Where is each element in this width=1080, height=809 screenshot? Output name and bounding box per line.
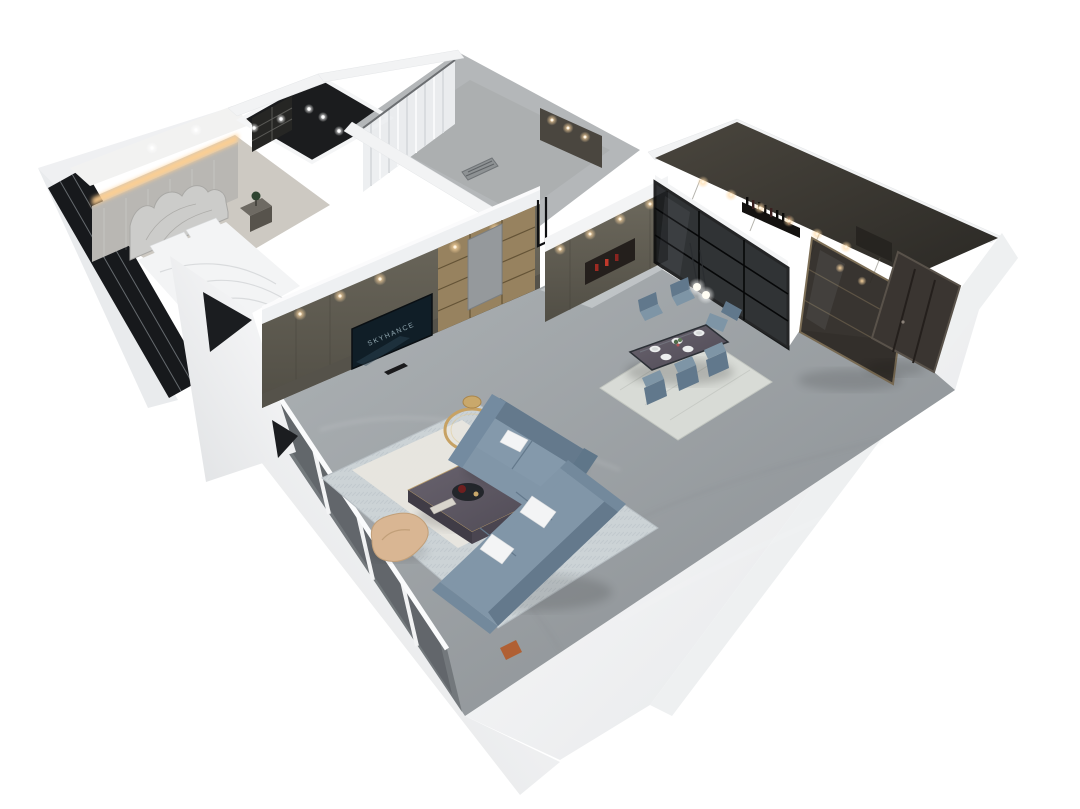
tray-decor-red xyxy=(458,485,466,493)
gold-side-table xyxy=(463,396,481,408)
table-tray xyxy=(452,483,484,501)
tray-decor-gold xyxy=(474,492,479,497)
door-handle xyxy=(901,320,904,323)
floorplan-render: SKYHANCE xyxy=(0,0,1080,809)
nightstand-plant xyxy=(252,192,261,201)
render-canvas: SKYHANCE xyxy=(0,0,1080,809)
